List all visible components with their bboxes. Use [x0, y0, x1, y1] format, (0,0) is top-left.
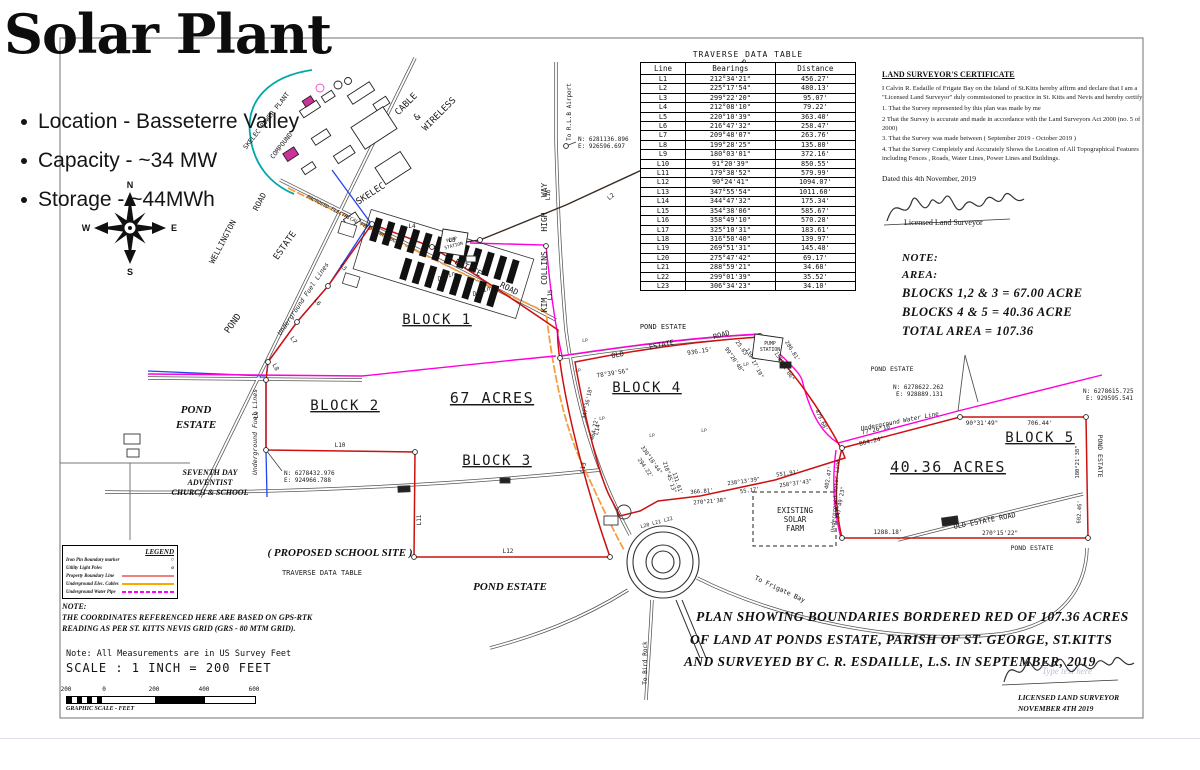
traverse-row: L5220°10'39"363.40' [641, 112, 856, 121]
map-label: LP [599, 416, 605, 422]
line-icon [122, 583, 174, 585]
map-label: N: 6281136.896 [578, 136, 629, 143]
measurements-note: Note: All Measurements are in US Survey … [66, 649, 291, 659]
traverse-table-title: TRAVERSE DATA TABLE [640, 50, 856, 59]
scale-bar [66, 696, 256, 704]
scale-statement: SCALE : 1 INCH = 200 FEET [66, 661, 272, 675]
map-label: E: 924966.788 [284, 477, 331, 484]
traverse-row: L3299°22'20"95.07' [641, 93, 856, 102]
area-note-block: NOTE:AREA:BLOCKS 1,2 & 3 = 67.00 ACREBLO… [902, 250, 1083, 341]
compass-south-label: S [127, 267, 133, 277]
map-label: Underground Fuel Lines [251, 389, 259, 475]
traverse-row: L23306°34'23"34.10' [641, 281, 856, 290]
map-label: 67 ACRES [450, 389, 534, 407]
graphic-scale: 2000200400600 GRAPHIC SCALE - FEET [66, 686, 266, 716]
traverse-row: L14344°47'32"175.34' [641, 197, 856, 206]
page-title: Solar Plant [4, 2, 331, 66]
map-label: N: 6278622.262 [893, 384, 944, 391]
map-label: POND ESTATE [870, 365, 913, 373]
map-label: POND [181, 404, 212, 416]
area-note-line: NOTE: [902, 250, 1083, 267]
map-label: HIGH [540, 212, 549, 231]
certificate-dated: Dated this 4th November, 2019 [882, 174, 1150, 183]
map-label: BLOCK 2 [310, 398, 380, 414]
map-label: L15 [547, 289, 554, 300]
traverse-row: L1212°34'21"456.27' [641, 75, 856, 84]
map-label: POND ESTATE [473, 581, 547, 593]
map-label: BLOCK 5 [1005, 430, 1075, 446]
traverse-row: L22299°01'39"35.52' [641, 272, 856, 281]
map-label: ADVENTIST [187, 478, 234, 487]
legend-item: Utility Light Polesø [66, 564, 174, 572]
stamp-line-2: NOVEMBER 4TH 2019 [1018, 704, 1150, 715]
map-label: BLOCK 3 [462, 453, 532, 469]
map-label: FARM [786, 524, 805, 533]
traverse-row: L19269°51'31"145.48' [641, 244, 856, 253]
traverse-row: L9180°03'01"372.16' [641, 150, 856, 159]
traverse-row: L2225°17'54"480.13' [641, 84, 856, 93]
map-label: BLOCK 4 [612, 380, 682, 396]
map-label: 602.46' [1076, 500, 1083, 523]
traverse-row: L1290°24'41"1094.07' [641, 178, 856, 187]
map-label: ( PROPOSED SCHOOL SITE ) [267, 547, 412, 559]
map-label: SEVENTH DAY [183, 468, 239, 477]
traverse-row: L6216°47'32"258.47' [641, 122, 856, 131]
traverse-row: L13347°55'54"1011.60' [641, 187, 856, 196]
map-label: 40.36 ACRES [890, 458, 1006, 476]
scale-tick: 0 [102, 686, 106, 693]
map-label: 180°21'38" [1075, 445, 1081, 478]
map-label: COLLINS [540, 251, 549, 285]
traverse-row: L4212°08'10"79.22' [641, 103, 856, 112]
map-label: L3 [448, 237, 456, 244]
map-label: PUMP [764, 341, 776, 347]
stamp-signature [1000, 648, 1140, 688]
area-note-line: TOTAL AREA = 107.36 [902, 322, 1083, 341]
map-label: 270°15'22" [982, 530, 1018, 537]
bottom-divider [0, 738, 1200, 739]
map-label: E: 928889.131 [896, 391, 943, 398]
scale-tick: 400 [199, 686, 210, 693]
line-icon [122, 575, 174, 577]
map-label: LP [743, 362, 749, 368]
scale-tick: 200 [61, 686, 72, 693]
traverse-row: L21288°59'21"34.68' [641, 263, 856, 272]
map-label: L4 [408, 223, 416, 230]
fact-bullet: Capacity - ~34 MW [38, 149, 299, 173]
legend-item: Underground Water Pipe [66, 588, 174, 596]
map-label: SOLAR [784, 515, 807, 524]
line-icon [122, 591, 174, 593]
legend-item: Property Boundary Line [66, 572, 174, 580]
graphic-scale-caption: GRAPHIC SCALE - FEET [66, 706, 266, 712]
area-note-line: BLOCKS 4 & 5 = 40.36 ACRE [902, 303, 1083, 322]
legend-item: Underground Elec. Cables [66, 580, 174, 588]
slide-page: N S W E SKELEC POWER PLANTCOMPOUNDCABLE&… [0, 0, 1200, 770]
traverse-row: L17325°10'31"183.61' [641, 225, 856, 234]
map-label: LP [582, 338, 588, 344]
map-label: N: 6278432.976 [284, 470, 335, 477]
map-label: LP [701, 428, 707, 434]
gps-note: NOTE:THE COORDINATES REFERENCED HERE ARE… [62, 602, 332, 634]
map-label: LP [575, 368, 581, 374]
scale-tick: 600 [249, 686, 260, 693]
traverse-row: L18316°50'40"139.97' [641, 234, 856, 243]
traverse-header-row: LineBearingsDistance [641, 63, 856, 75]
map-label: 706.44' [1027, 420, 1052, 427]
legend: LEGEND Iron Pin Boundary marker○Utility … [62, 545, 178, 599]
certificate-body: I Calvin R. Esdaille of Frigate Bay on t… [882, 85, 1150, 164]
fact-bullet-list: Location - Basseterre ValleyCapacity - ~… [38, 110, 299, 227]
map-label: To R.L.B Airport [566, 83, 573, 141]
map-label: To Bird Rock [642, 641, 649, 685]
fact-bullet: Location - Basseterre Valley [38, 110, 299, 134]
map-label: 1288.18' [874, 529, 903, 536]
map-label: 90°31'49" [966, 420, 999, 427]
map-label: N: 6278615.725 [1083, 388, 1134, 395]
map-label: L16 [545, 189, 552, 200]
circle-icon: ○ [171, 557, 174, 563]
traverse-row: L16358°49'10"570.28' [641, 216, 856, 225]
traverse-row: L11179°38'52"579.99' [641, 169, 856, 178]
fact-bullet: Storage - ~44MWh [38, 188, 299, 212]
traverse-row: L7209°48'07"263.76' [641, 131, 856, 140]
map-label: L10 [335, 442, 346, 449]
traverse-row: L1091°20'39"850.55' [641, 159, 856, 168]
map-label: E: 929595.541 [1086, 395, 1133, 402]
scale-tick: 200 [149, 686, 160, 693]
map-label: POND ESTATE [640, 323, 686, 331]
certificate-heading: LAND SURVEYOR'S CERTIFICATE [882, 70, 1150, 79]
map-label: CHURCH & SCHOOL [172, 488, 249, 497]
traverse-data-table: TRAVERSE DATA TABLE LineBearingsDistance… [640, 50, 856, 291]
map-label: EXISTING [777, 506, 814, 515]
map-label: L12 [503, 548, 514, 555]
map-label: LP [649, 433, 655, 439]
legend-title: LEGEND [66, 548, 174, 556]
stamp-line-1: LICENSED LAND SURVEYOR [1018, 693, 1150, 704]
map-label: L9 [253, 411, 260, 419]
area-note-line: AREA: [902, 267, 1083, 284]
traverse-row: L8199°28'25"135.80' [641, 140, 856, 149]
legend-item: Iron Pin Boundary marker○ [66, 556, 174, 564]
plan-caption-line: PLAN SHOWING BOUNDARIES BORDERED RED OF … [696, 606, 1129, 629]
map-label: ESTATE [175, 419, 216, 431]
surveyor-certificate: LAND SURVEYOR'S CERTIFICATE I Calvin R. … [882, 70, 1150, 227]
pole-icon: ø [171, 565, 174, 571]
map-label: E: 926596.697 [578, 143, 625, 150]
map-label: TRAVERSE DATA TABLE [282, 569, 362, 577]
traverse-row: L15354°38'06"585.67' [641, 206, 856, 215]
map-label: POND ESTATE [1096, 434, 1104, 477]
map-label: BLOCK 1 [402, 312, 472, 328]
traverse-row: L20275°47'42"69.17' [641, 253, 856, 262]
map-label: POND ESTATE [1010, 544, 1053, 552]
map-label: L11 [416, 514, 423, 525]
area-note-line: BLOCKS 1,2 & 3 = 67.00 ACRE [902, 284, 1083, 303]
surveyor-stamp: Type text here LICENSED LAND SURVEYOR NO… [1000, 648, 1150, 714]
